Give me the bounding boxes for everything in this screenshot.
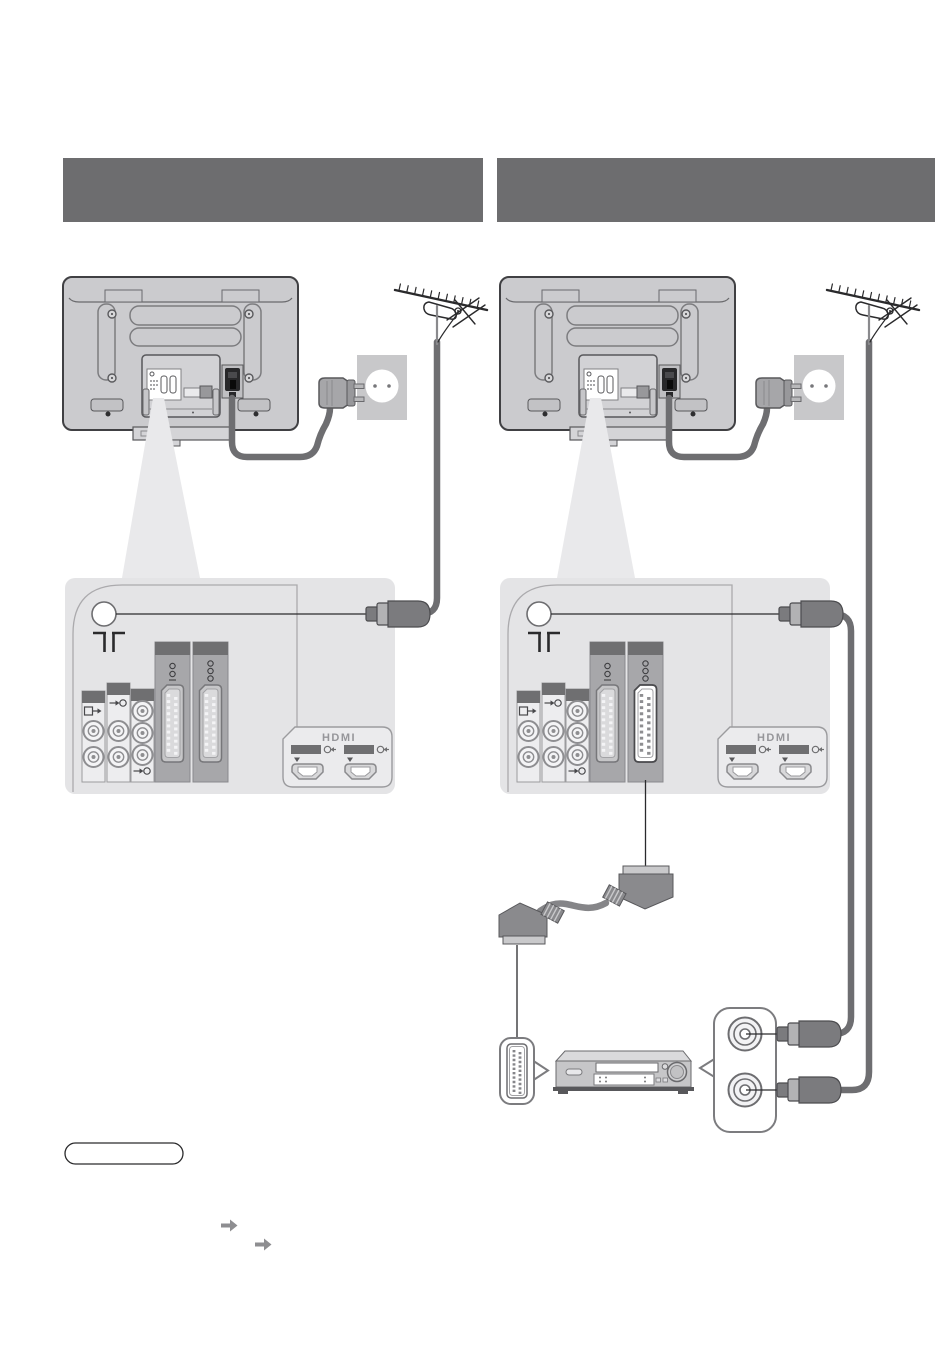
page-illustration: HDMI <box>0 0 950 1360</box>
recorder-power-button <box>566 1069 582 1075</box>
tv-rear-right <box>500 277 735 446</box>
aerial-antenna-left <box>395 284 487 344</box>
rf-plug-recorder-bottom <box>777 1077 841 1103</box>
aerial-cable-right <box>842 342 869 1090</box>
diagram-right <box>499 277 919 1132</box>
aerial-cable-left <box>421 342 437 614</box>
terminal-panel-left <box>65 578 395 794</box>
dvd-recorder <box>553 1051 694 1094</box>
manual-page: HDMI <box>0 0 950 1360</box>
page-reference-arrow-2 <box>255 1239 272 1251</box>
section-header-right <box>497 158 935 222</box>
recorder-display <box>596 1063 658 1072</box>
scart-callout <box>500 1038 548 1104</box>
aerial-antenna-right <box>827 284 919 344</box>
scart-plug-upper <box>603 866 673 909</box>
scart-av2-highlighted <box>635 685 657 762</box>
tv-rear-left <box>63 277 298 446</box>
diagram-left <box>63 277 487 794</box>
scart-cable <box>499 780 673 1040</box>
scart-plug-lower <box>499 902 564 944</box>
recorder-front-panel <box>594 1074 654 1085</box>
rf-plug-recorder-top <box>777 1021 841 1047</box>
page-reference-arrow-1 <box>221 1220 238 1232</box>
section-header-left <box>63 158 483 222</box>
note-box <box>65 1143 183 1164</box>
rf-link-cable <box>834 614 851 1034</box>
rf-terminal-callout <box>700 1008 781 1132</box>
